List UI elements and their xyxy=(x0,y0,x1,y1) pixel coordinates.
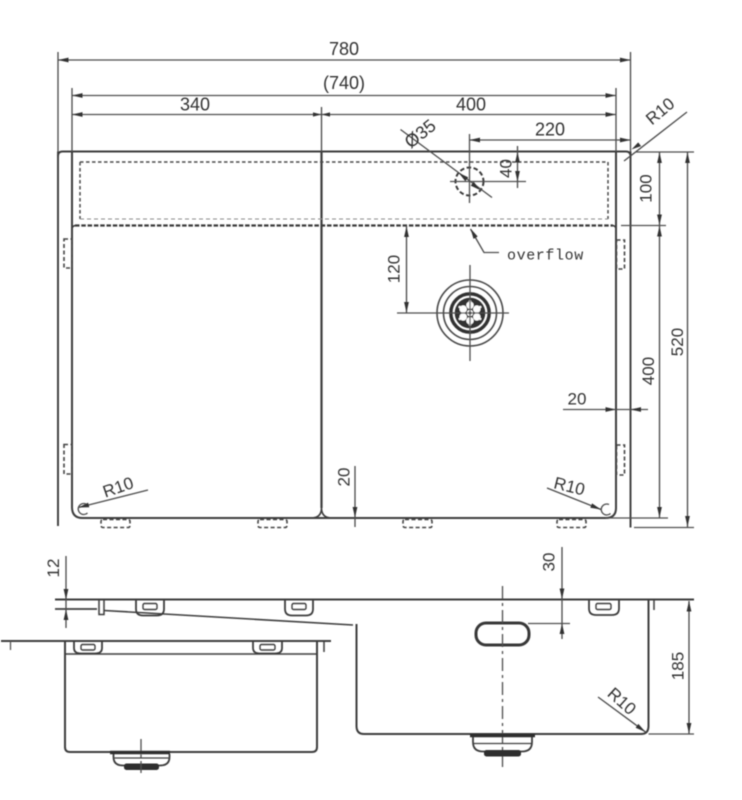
svg-text:12: 12 xyxy=(44,559,63,578)
svg-text:(740): (740) xyxy=(323,73,365,93)
svg-text:20: 20 xyxy=(334,468,353,487)
svg-text:100: 100 xyxy=(636,174,655,202)
svg-text:120: 120 xyxy=(384,255,403,283)
svg-text:20: 20 xyxy=(568,390,587,409)
svg-text:R10: R10 xyxy=(100,473,136,501)
svg-text:780: 780 xyxy=(329,39,359,59)
svg-text:R10: R10 xyxy=(552,473,587,499)
svg-text:400: 400 xyxy=(639,357,658,385)
svg-text:40: 40 xyxy=(496,159,515,178)
svg-text:185: 185 xyxy=(668,652,687,680)
svg-text:R10: R10 xyxy=(604,684,640,719)
svg-text:400: 400 xyxy=(456,95,486,115)
svg-text:520: 520 xyxy=(668,328,687,356)
svg-text:220: 220 xyxy=(535,120,565,140)
svg-text:340: 340 xyxy=(180,95,210,115)
svg-text:30: 30 xyxy=(539,553,558,572)
svg-text:overflow: overflow xyxy=(507,248,584,265)
svg-text:Ø35: Ø35 xyxy=(401,115,440,152)
